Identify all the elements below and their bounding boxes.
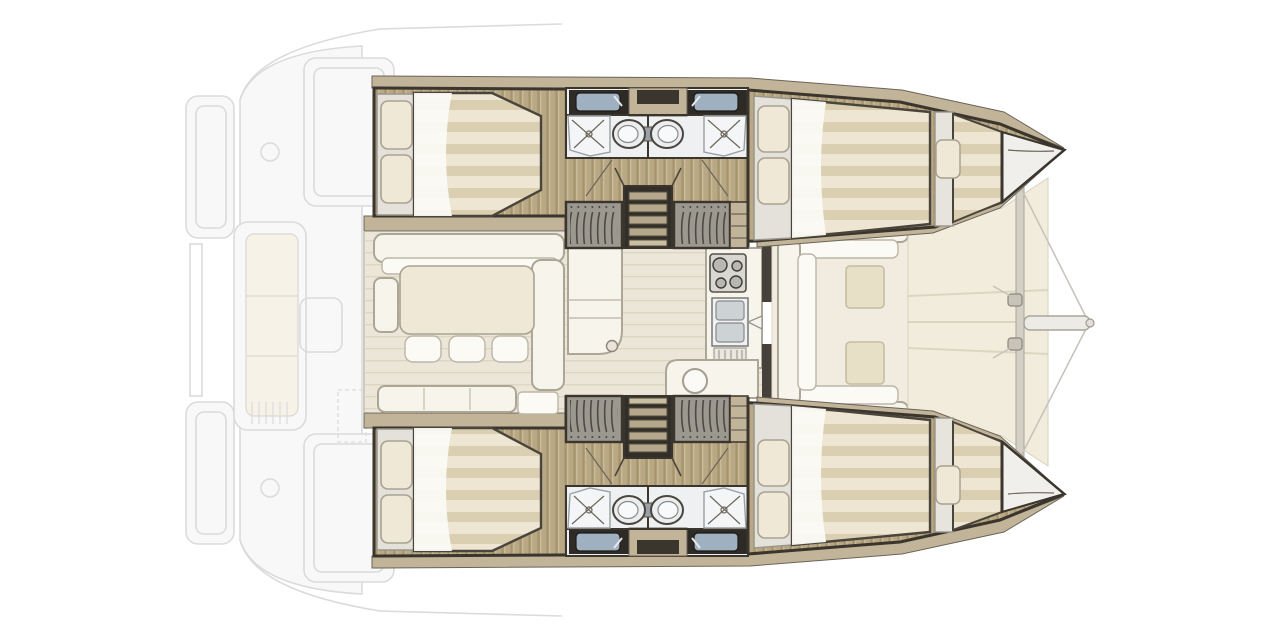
aft-cabin	[377, 93, 541, 216]
sink-basin	[716, 323, 744, 342]
galley-island	[568, 248, 622, 354]
saloon-sofa-side-bench	[532, 260, 564, 390]
stool	[449, 336, 485, 362]
bathroom	[566, 88, 748, 158]
shower-tray	[704, 116, 746, 156]
fwd-bench-back-left	[778, 240, 800, 404]
shower-tray	[568, 116, 610, 156]
sink	[576, 93, 620, 111]
pillow	[758, 158, 789, 204]
sink	[694, 93, 738, 111]
pillow	[381, 101, 412, 149]
shelf-unit	[730, 202, 748, 248]
cabinet-box	[637, 90, 679, 104]
bowsprit-tip	[1086, 319, 1094, 327]
dining-table	[400, 266, 534, 334]
bowsprit	[1024, 316, 1090, 330]
round-stool	[683, 369, 707, 393]
saloon-aft-wall-port	[364, 216, 566, 231]
saloon-forward-wall	[762, 344, 772, 402]
wardrobe-tambour	[570, 206, 618, 244]
transom-crossbar	[190, 244, 202, 396]
pillow	[936, 140, 960, 178]
saloon-forward-wall	[762, 246, 772, 302]
stool	[405, 336, 441, 362]
chaise-bench	[378, 386, 516, 412]
nav-seat	[666, 360, 758, 398]
saloon-aft-wall-starboard	[364, 413, 566, 428]
aft-bench-cushion	[246, 234, 298, 416]
forward-crossbeam	[1016, 182, 1024, 462]
cockpit-cushion	[846, 266, 884, 308]
catamaran-floorplan	[0, 0, 1280, 640]
saloon-sofa-armrest	[374, 278, 398, 332]
forward-cabin	[748, 90, 930, 247]
side-table	[518, 392, 558, 414]
cockpit-cushion	[846, 342, 884, 384]
bed-sheet	[792, 99, 826, 238]
toilet-bowl	[658, 126, 678, 143]
floorplan-svg	[0, 0, 1280, 640]
stool	[492, 336, 528, 362]
pillow	[381, 155, 412, 203]
fwd-bench-seat-left	[798, 254, 816, 390]
toilet-bowl	[618, 126, 638, 143]
island-knob	[607, 341, 618, 352]
wardrobe-tambour	[678, 206, 726, 244]
pillow	[758, 106, 789, 152]
sink-basin	[716, 301, 744, 320]
